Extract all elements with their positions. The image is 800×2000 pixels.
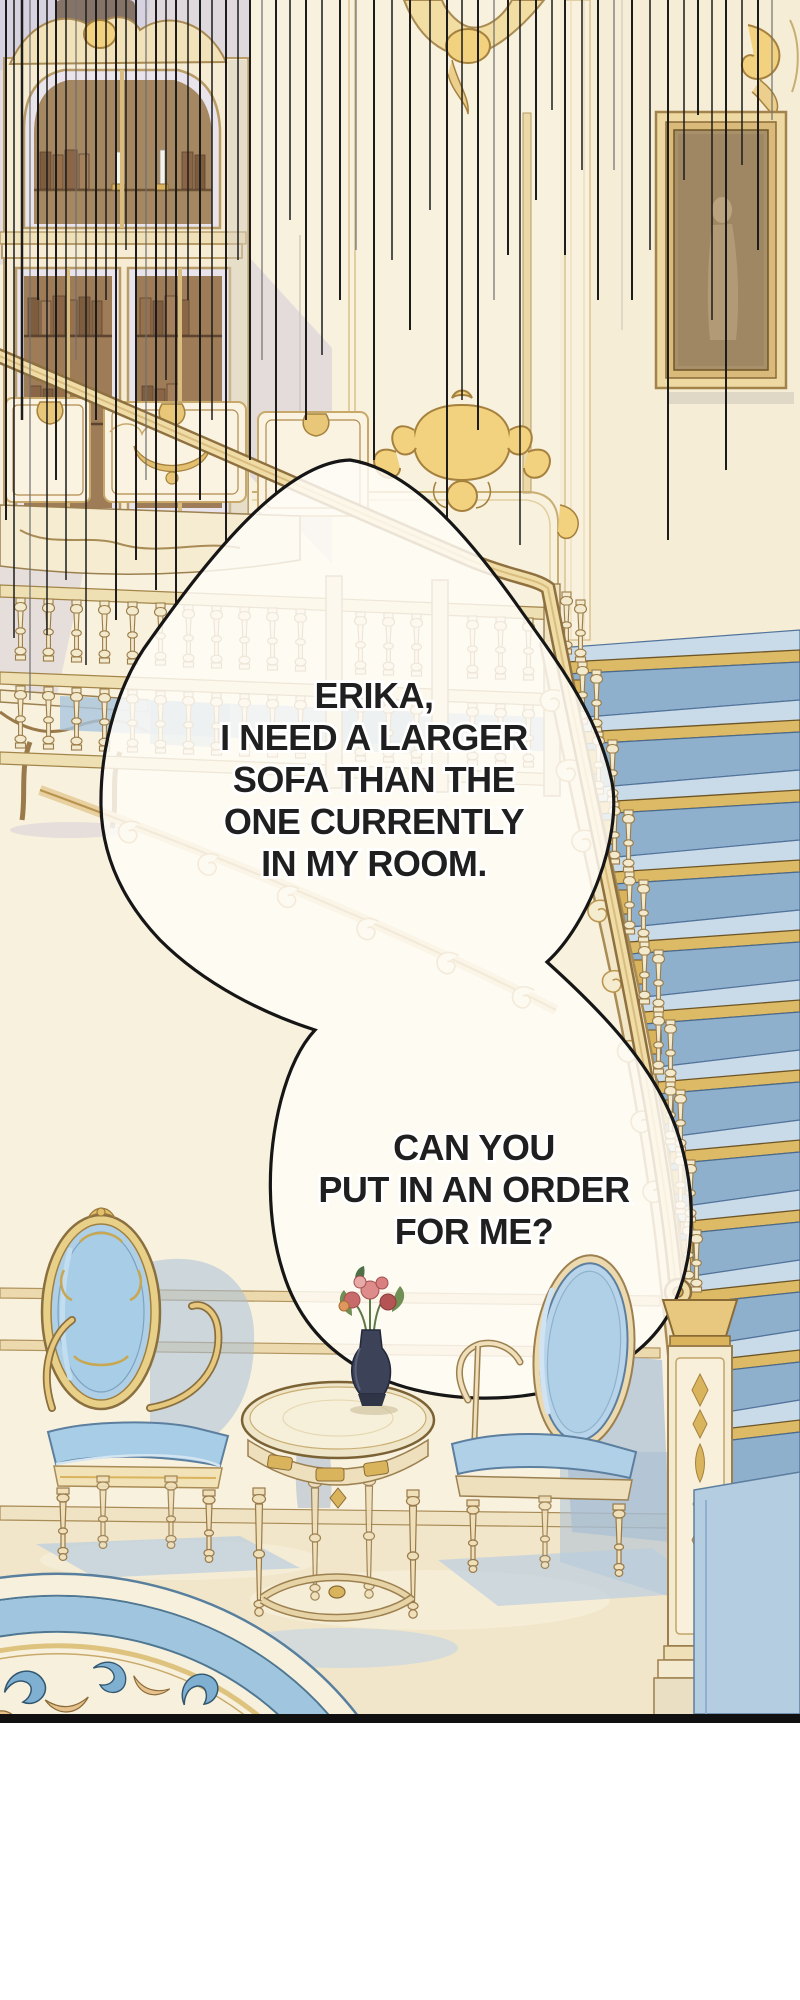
dialogue-line: ONE CURRENTLY [224,801,525,842]
picture-shadow [668,392,794,404]
panel-art: ERIKA, I NEED A LARGER SOFA THAN THE ONE… [0,0,800,2000]
dialogue-line: SOFA THAN THE [233,759,515,800]
dialogue-line: FOR ME? [395,1211,553,1252]
dialogue-line: IN MY ROOM. [261,843,487,884]
comic-panel: ERIKA, I NEED A LARGER SOFA THAN THE ONE… [0,0,800,2000]
dialogue-line: PUT IN AN ORDER [318,1169,630,1210]
cabinet-cornice [0,232,246,244]
stair-fascia [694,1472,800,1714]
dialogue-line: ERIKA, [314,675,433,716]
panel-bottom-border [0,1714,800,1723]
page-margin [0,1723,800,2000]
dialogue-line: I NEED A LARGER [220,717,528,758]
dialogue-line: CAN YOU [393,1127,555,1168]
